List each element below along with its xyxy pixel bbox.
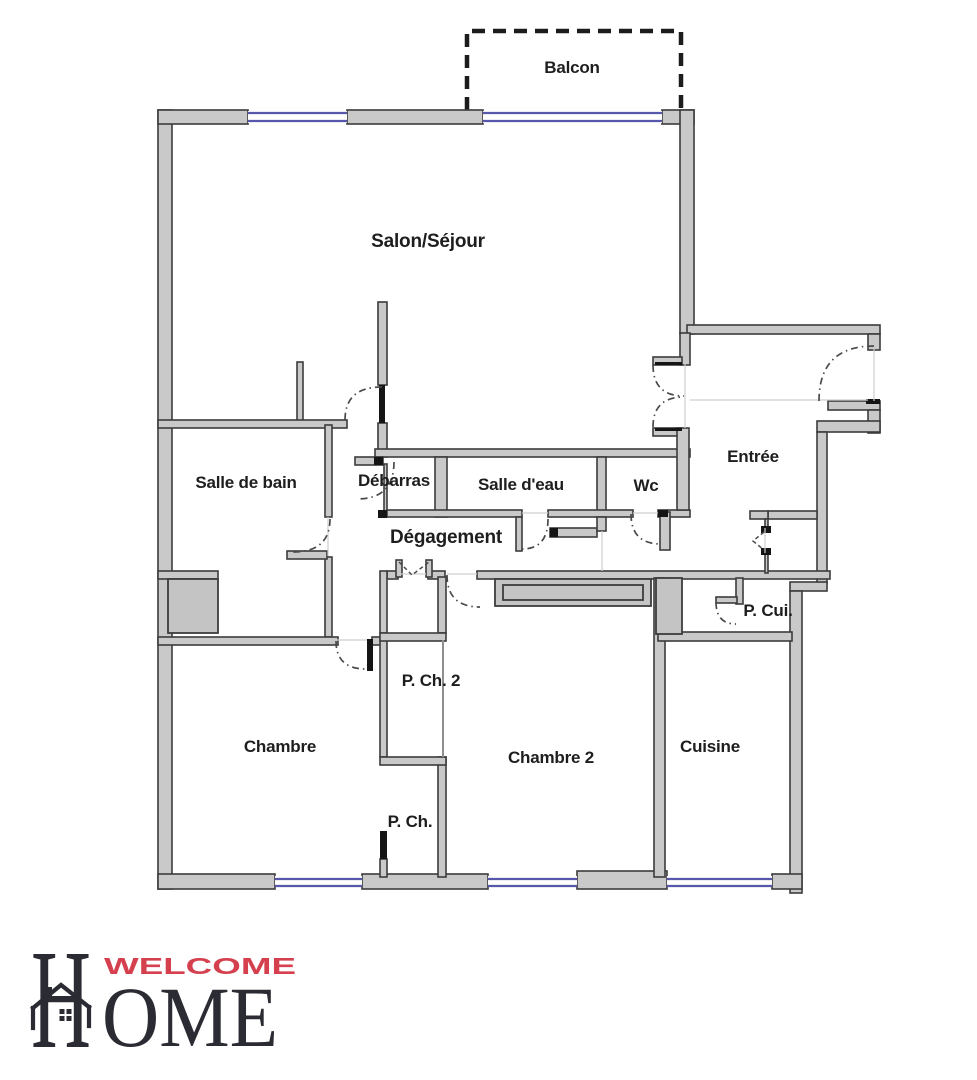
chambre-door-arc	[336, 641, 366, 669]
room-label-wc: Wc	[633, 476, 658, 496]
closet-bifold-dash	[399, 562, 429, 575]
room-label-chambre-2: Chambre 2	[508, 748, 594, 768]
closet-open-side	[442, 640, 444, 757]
logo-home-rest: OME	[102, 969, 278, 1065]
room-label-salle-deau: Salle d'eau	[478, 475, 564, 495]
room-label-chambre: Chambre	[244, 737, 316, 757]
room-label-cuisine: Cuisine	[680, 737, 740, 757]
welcome-home-logo: H WELCOME OME	[18, 925, 348, 1075]
walls-layer	[158, 110, 880, 893]
fixtures-layer	[168, 578, 682, 634]
salon-double-door-arc-lower	[653, 397, 684, 427]
entree-closet-bifold-dash	[753, 532, 764, 550]
salon-door-arc	[345, 387, 382, 420]
pcui-door-arc	[716, 602, 736, 624]
room-label-p-ch: P. Ch.	[388, 812, 433, 832]
room-label-balcon: Balcon	[544, 58, 599, 78]
salon-double-door-arc-upper	[653, 365, 684, 396]
room-label-salon: Salon/Séjour	[371, 231, 485, 253]
room-label-p-cui: P. Cui.	[743, 601, 792, 621]
wardrobe-chambre2	[495, 579, 651, 606]
room-label-salle-de-bain: Salle de bain	[195, 473, 296, 493]
chambre2-door-arc	[447, 575, 480, 607]
room-label-degagement: Dégagement	[390, 527, 502, 549]
shaft-block	[656, 578, 682, 634]
wc-door-arc	[631, 514, 661, 544]
room-label-p-ch-2: P. Ch. 2	[402, 671, 461, 691]
room-label-entree: Entrée	[727, 447, 779, 467]
room-label-debarras: Débarras	[358, 471, 430, 491]
bathroom-door-arc	[293, 519, 330, 552]
entrance-door-arc	[819, 346, 874, 401]
salle-deau-door-arc	[522, 519, 548, 549]
bathroom-fixture-block	[168, 579, 218, 633]
